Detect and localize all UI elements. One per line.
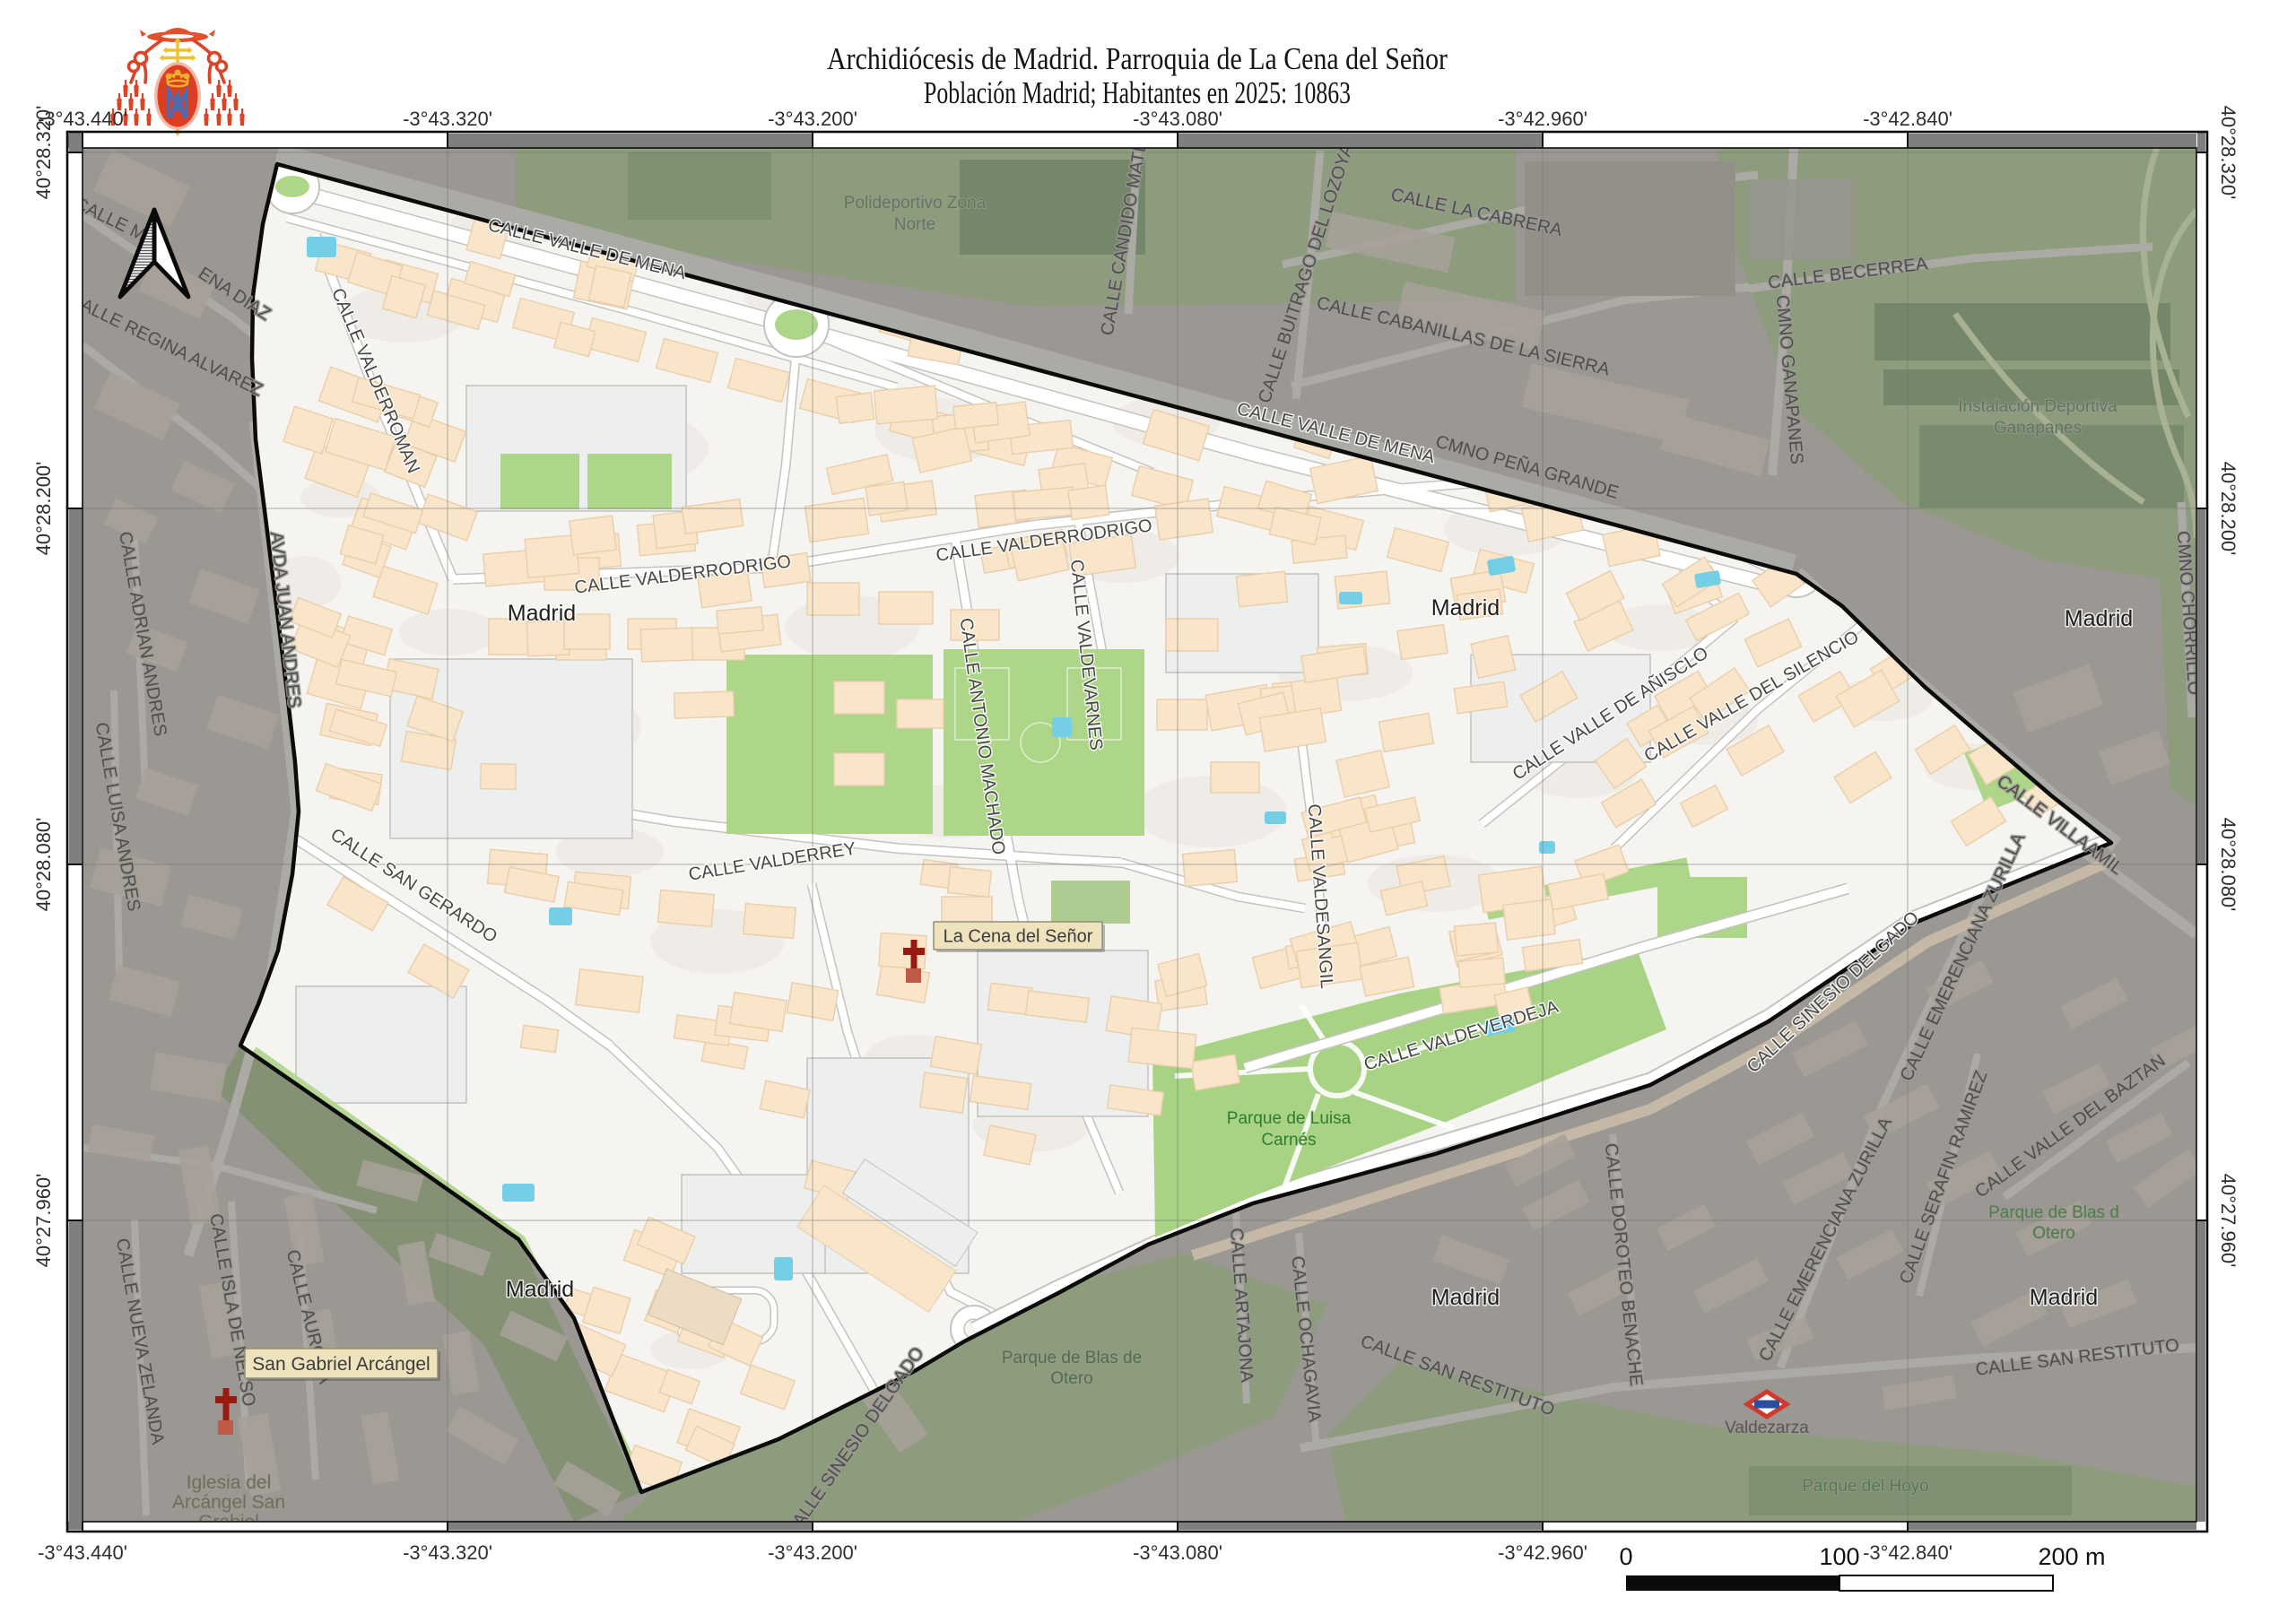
svg-text:Otero: Otero xyxy=(2032,1224,2075,1243)
svg-text:-3°43.200': -3°43.200' xyxy=(768,1541,857,1564)
svg-text:Otero: Otero xyxy=(1050,1369,1093,1388)
svg-text:Madrid: Madrid xyxy=(2030,1285,2098,1310)
svg-text:-3°43.440': -3°43.440' xyxy=(38,1541,127,1564)
svg-text:Madrid: Madrid xyxy=(2065,606,2133,631)
svg-text:40°28.200': 40°28.200' xyxy=(32,462,55,556)
svg-text:Valdezarza: Valdezarza xyxy=(1725,1419,1809,1437)
svg-text:-3°42.840': -3°42.840' xyxy=(1863,1541,1952,1564)
svg-text:Población Madrid; Habitantes e: Población Madrid; Habitantes en 2025: 10… xyxy=(924,75,1351,110)
svg-text:40°28.320': 40°28.320' xyxy=(2217,106,2239,200)
svg-text:40°28.080': 40°28.080' xyxy=(2217,818,2239,912)
svg-text:-3°43.080': -3°43.080' xyxy=(1133,108,1222,130)
svg-text:40°27.960': 40°27.960' xyxy=(32,1174,55,1268)
svg-text:Madrid: Madrid xyxy=(506,1277,574,1302)
svg-text:-3°43.080': -3°43.080' xyxy=(1133,1541,1222,1564)
svg-text:-3°42.960': -3°42.960' xyxy=(1498,108,1587,130)
svg-text:40°27.960': 40°27.960' xyxy=(2217,1174,2239,1268)
svg-text:Madrid: Madrid xyxy=(1431,1285,1500,1310)
svg-text:40°28.200': 40°28.200' xyxy=(2217,462,2239,556)
svg-text:Madrid: Madrid xyxy=(1431,595,1500,621)
svg-text:-3°43.320': -3°43.320' xyxy=(403,1541,492,1564)
svg-text:0: 0 xyxy=(1619,1543,1632,1570)
svg-text:Parque de Blas d: Parque de Blas d xyxy=(1988,1203,2119,1222)
svg-text:Instalación Deportiva: Instalación Deportiva xyxy=(1958,397,2118,416)
svg-text:Parque del Hoyo: Parque del Hoyo xyxy=(1802,1477,1929,1496)
svg-text:40°28.320': 40°28.320' xyxy=(32,106,55,200)
svg-text:Iglesia del: Iglesia del xyxy=(187,1472,272,1493)
svg-text:-3°42.840': -3°42.840' xyxy=(1863,108,1952,130)
svg-text:100: 100 xyxy=(1819,1543,1859,1570)
svg-text:Polideportivo Zona: Polideportivo Zona xyxy=(844,194,987,213)
svg-text:200 m: 200 m xyxy=(2038,1543,2105,1570)
svg-text:Parque de Luisa: Parque de Luisa xyxy=(1227,1109,1352,1128)
svg-text:Ganapanes: Ganapanes xyxy=(1994,419,2082,438)
svg-text:Arcángel San: Arcángel San xyxy=(172,1492,285,1513)
svg-text:San Gabriel Arcángel: San Gabriel Arcángel xyxy=(252,1354,430,1375)
svg-text:-3°43.320': -3°43.320' xyxy=(403,108,492,130)
svg-text:Parque de Blas de: Parque de Blas de xyxy=(1002,1349,1142,1367)
svg-text:40°28.080': 40°28.080' xyxy=(32,818,55,912)
svg-text:-3°42.960': -3°42.960' xyxy=(1498,1541,1587,1564)
svg-text:Norte: Norte xyxy=(894,215,935,234)
svg-text:La Cena del Señor: La Cena del Señor xyxy=(944,927,1093,947)
svg-text:Archidiócesis de Madrid. Parro: Archidiócesis de Madrid. Parroquia de La… xyxy=(827,41,1448,76)
svg-text:-3°43.200': -3°43.200' xyxy=(768,108,857,130)
svg-text:Madrid: Madrid xyxy=(508,601,576,626)
svg-text:Carnés: Carnés xyxy=(1261,1131,1316,1150)
